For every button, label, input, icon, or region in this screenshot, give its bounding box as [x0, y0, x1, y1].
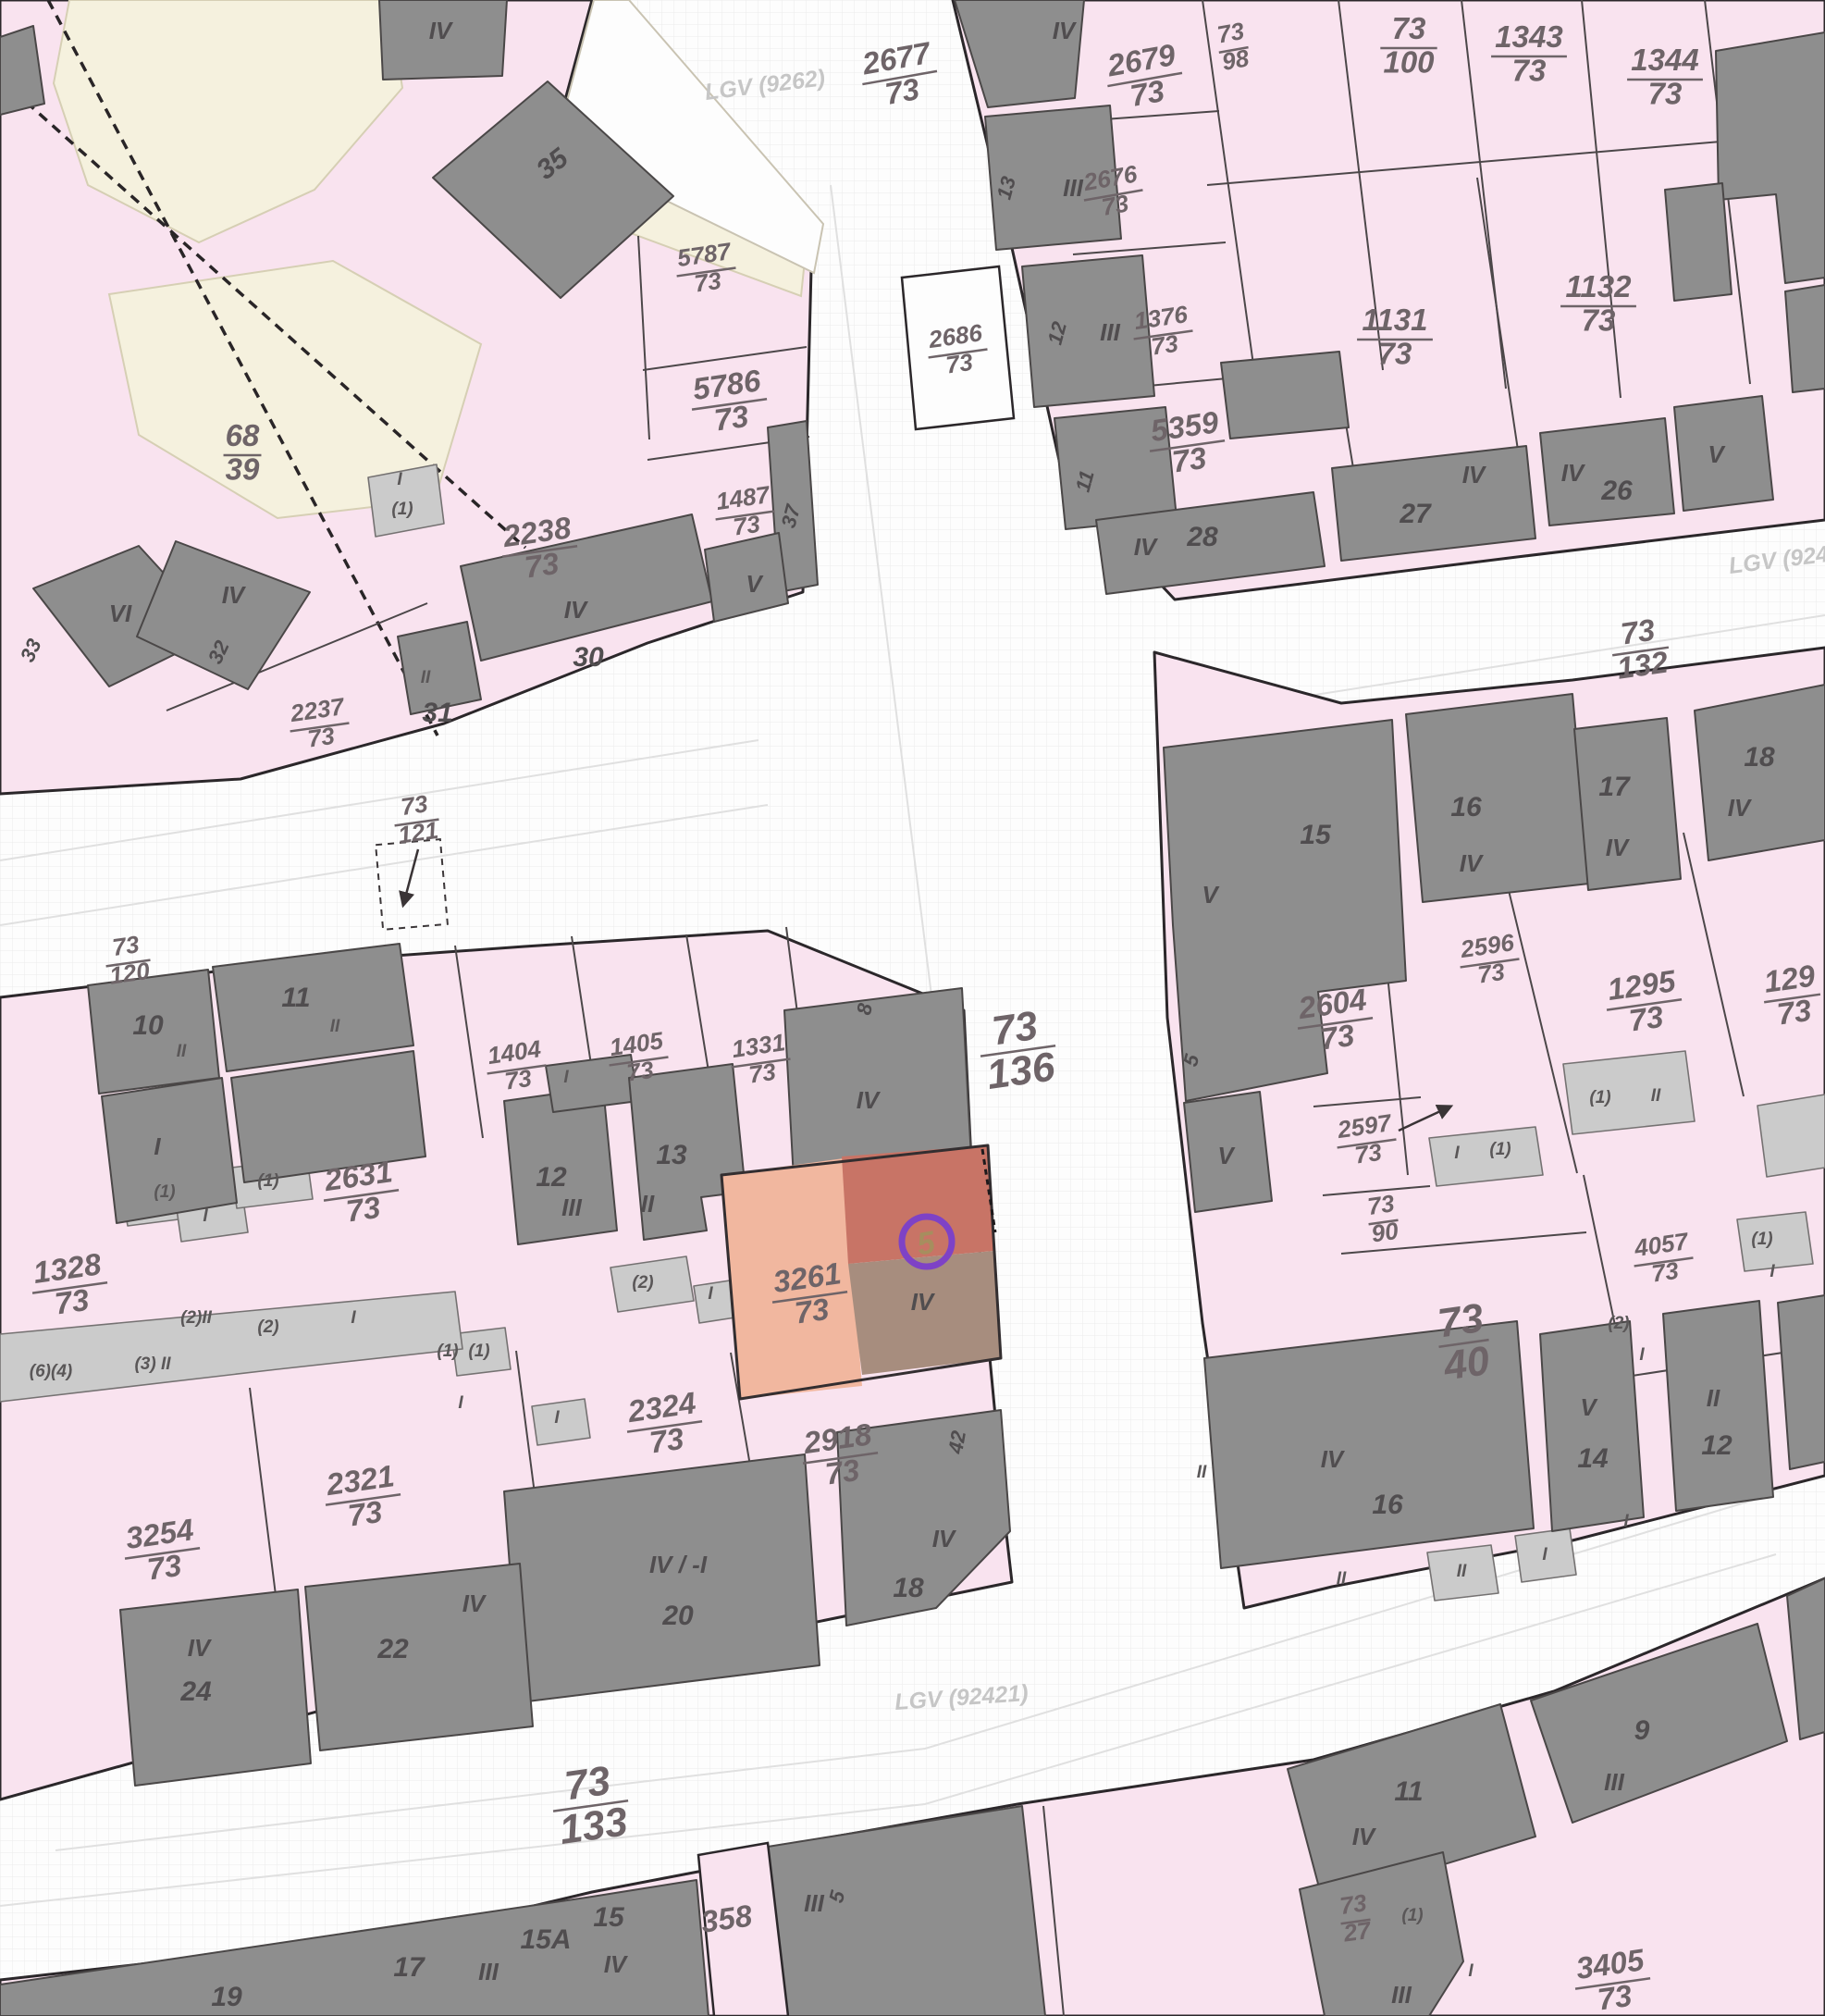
map-label: III: [1604, 1768, 1624, 1796]
parcel-denominator: 73: [1353, 1138, 1384, 1169]
parcel-denominator: 73: [793, 1292, 832, 1330]
parcel-denominator: 73: [944, 348, 975, 379]
parcel-denominator: 132: [1615, 644, 1671, 685]
map-label: IV: [1053, 17, 1078, 44]
map-label: 12: [1701, 1430, 1733, 1461]
map-label: III: [1063, 174, 1083, 202]
parcel-denominator: 73: [1378, 336, 1412, 370]
map-label: 17: [1598, 772, 1631, 802]
map-label: 31: [422, 698, 452, 728]
map-label: I: [1468, 1961, 1474, 1981]
map-label: 9: [1634, 1715, 1650, 1746]
parcel-denominator: 27: [1341, 1916, 1374, 1948]
map-label: I: [1623, 1512, 1629, 1531]
parcel-denominator: 73: [1596, 1978, 1634, 2016]
parcel-number: 1343: [1495, 19, 1562, 54]
parcel-denominator: 120: [108, 957, 153, 990]
map-label: 18: [893, 1573, 924, 1603]
map-label: II: [1457, 1562, 1467, 1581]
parcel-number: 1344: [1631, 43, 1698, 77]
map-label: III: [561, 1194, 582, 1221]
parcel-denominator: 73: [1582, 303, 1616, 337]
parcel-number: 68: [226, 418, 260, 452]
parcel-denominator: 73: [625, 1056, 656, 1087]
parcel-denominator: 73: [145, 1548, 184, 1587]
parcel-number: 129: [1762, 958, 1818, 998]
parcel-denominator: 73: [823, 1453, 862, 1491]
parcel-denominator: 73: [306, 722, 337, 753]
map-label: I: [1542, 1545, 1548, 1565]
parcel-number: 1132: [1566, 269, 1633, 303]
map-label: IV: [1321, 1445, 1346, 1473]
map-label: 11: [281, 983, 310, 1013]
map-label: I: [708, 1284, 713, 1304]
map-label: 20: [661, 1601, 694, 1631]
map-label: 358: [699, 1898, 755, 1938]
parcel-denominator: 73: [647, 1421, 686, 1460]
map-label: 26: [1600, 476, 1633, 506]
parcel-denominator: 73: [1775, 993, 1814, 1032]
map-label: II: [1651, 1086, 1661, 1106]
parcel-number: 73: [1366, 1189, 1397, 1220]
map-label: (1): [1751, 1230, 1772, 1249]
map-label: IV: [857, 1086, 882, 1114]
cadastral-map-canvas[interactable]: 2677732679737398731001343731344732676735…: [0, 0, 1825, 2016]
map-label: IV: [932, 1525, 957, 1552]
parcel-denominator: 73: [712, 399, 751, 438]
map-label: IV: [1728, 794, 1753, 822]
parcel-denominator: 73: [523, 546, 561, 585]
map-label: (1): [154, 1182, 175, 1202]
map-label: III: [804, 1889, 824, 1917]
map-label: (2): [632, 1273, 653, 1292]
map-label: 18: [1744, 742, 1775, 773]
parcel-denominator: 73: [747, 1057, 778, 1089]
map-label: IV: [1606, 834, 1631, 861]
parcel-number: 73: [1619, 612, 1658, 651]
map-label: II: [1197, 1463, 1207, 1482]
map-label: 11: [1394, 1776, 1423, 1807]
map-label: (3) II: [134, 1354, 171, 1374]
map-label: V: [1580, 1393, 1598, 1421]
map-label: II: [330, 1017, 340, 1036]
highlighted-parcel-3261[interactable]: [721, 1145, 1001, 1399]
parcel-number: 1131: [1363, 303, 1428, 337]
parcel-denominator: 73: [346, 1494, 385, 1533]
parcel-denominator: 73: [1648, 76, 1683, 110]
map-label: IV: [462, 1589, 487, 1617]
map-label: I: [563, 1068, 569, 1087]
map-label: V: [1708, 440, 1726, 468]
parcel-denominator: 73: [1627, 999, 1666, 1038]
map-label: V: [746, 570, 764, 598]
map-label: IV: [1462, 461, 1487, 489]
parcel-denominator: 90: [1370, 1217, 1400, 1248]
map-label: IV / -I: [649, 1551, 708, 1578]
map-label: II: [421, 668, 431, 687]
map-label: (1): [257, 1171, 278, 1191]
map-label: 16: [1372, 1490, 1403, 1520]
map-label: IV: [188, 1634, 213, 1662]
parcel-number: 73: [400, 789, 430, 821]
parcel-denominator: 73: [1170, 440, 1209, 479]
parcel-denominator: 73: [732, 510, 762, 541]
map-label: I: [554, 1408, 560, 1428]
parcel-denominator: 73: [1128, 73, 1167, 113]
map-label: 14: [1577, 1443, 1609, 1474]
map-label: II: [1337, 1569, 1347, 1589]
map-label: (1): [468, 1342, 489, 1361]
parcel-number: 73: [1392, 11, 1426, 45]
parcel-denominator: 121: [397, 816, 440, 849]
map-label: IV: [911, 1288, 936, 1316]
parcel-denominator: 133: [557, 1799, 631, 1853]
map-label: (1): [1401, 1906, 1423, 1925]
map-label: 17: [393, 1952, 425, 1983]
parcel-denominator: 40: [1440, 1338, 1493, 1390]
map-label: I: [203, 1206, 208, 1226]
map-label: VI: [109, 600, 132, 627]
map-label: I: [458, 1393, 463, 1413]
map-label: IV: [429, 17, 454, 44]
parcel-denominator: 73: [882, 71, 922, 111]
map-label: III: [1100, 318, 1120, 346]
map-label: 16: [1450, 792, 1482, 822]
parcel-label-68-39: 6839: [224, 418, 262, 486]
parcel-number: 73: [1338, 1888, 1369, 1920]
map-label: III: [478, 1958, 499, 1985]
map-label: 10: [132, 1010, 164, 1041]
map-label: (1): [437, 1342, 458, 1361]
parcel-number: 73: [111, 930, 142, 961]
parcel-denominator: 73: [53, 1282, 92, 1321]
parcel-denominator: 73: [1318, 1018, 1357, 1057]
map-label: IV: [1561, 459, 1586, 487]
map-label: I: [154, 1132, 161, 1160]
parcel-denominator: 73: [344, 1190, 383, 1229]
map-label: (1): [1489, 1140, 1511, 1159]
parcel-denominator: 73: [1100, 189, 1131, 221]
map-label: 28: [1186, 522, 1218, 552]
map-label: II: [1707, 1384, 1720, 1412]
map-label: IV: [222, 581, 247, 609]
map-label: (2): [1608, 1314, 1629, 1333]
map-label: 27: [1399, 499, 1432, 529]
map-label: (2): [257, 1317, 278, 1337]
map-label: IV: [1134, 533, 1159, 561]
map-label: 15A: [520, 1924, 571, 1955]
map-label: 42: [943, 1429, 970, 1456]
parcel-denominator: 73: [693, 266, 723, 298]
map-label: IV: [564, 596, 589, 624]
parcel-denominator: 73: [503, 1064, 534, 1095]
map-label: I: [1770, 1262, 1775, 1281]
map-label: (1): [391, 500, 413, 519]
parcel-denominator: 100: [1383, 44, 1435, 79]
parcel-denominator: 39: [226, 451, 260, 486]
map-label: 24: [179, 1676, 212, 1707]
map-label: III: [1391, 1981, 1412, 2009]
parcel-denominator: 73: [1150, 329, 1180, 361]
parcel-denominator: 73: [1476, 958, 1507, 989]
map-label: (2)II: [180, 1308, 213, 1328]
map-label: 13: [656, 1140, 687, 1170]
map-label: 22: [376, 1634, 409, 1664]
map-label: 15: [593, 1902, 625, 1933]
map-label: V: [1202, 881, 1220, 909]
map-label: IV: [1460, 849, 1485, 877]
map-label: I: [1639, 1345, 1645, 1365]
map-label: 12: [536, 1162, 567, 1193]
map-label: IV: [604, 1950, 629, 1978]
map-label: (6)(4): [30, 1362, 72, 1381]
parcel-denominator: 98: [1220, 43, 1252, 76]
map-label: 30: [573, 642, 604, 673]
map-label: V: [1217, 1142, 1236, 1169]
map-label: II: [641, 1190, 655, 1218]
parcel-denominator: 73: [1650, 1256, 1681, 1288]
map-label: I: [397, 470, 402, 489]
map-label: I: [1454, 1144, 1460, 1163]
cadastral-map-viewport[interactable]: 2677732679737398731001343731344732676735…: [0, 0, 1825, 2016]
map-label: 19: [211, 1982, 242, 2012]
parcel-denominator: 73: [1512, 53, 1547, 87]
map-label: 15: [1300, 820, 1332, 850]
parcel-denominator: 136: [984, 1044, 1058, 1098]
map-label: (1): [1589, 1088, 1610, 1107]
map-label: IV: [1352, 1823, 1377, 1850]
map-label: II: [177, 1042, 187, 1061]
map-label: I: [351, 1308, 356, 1328]
